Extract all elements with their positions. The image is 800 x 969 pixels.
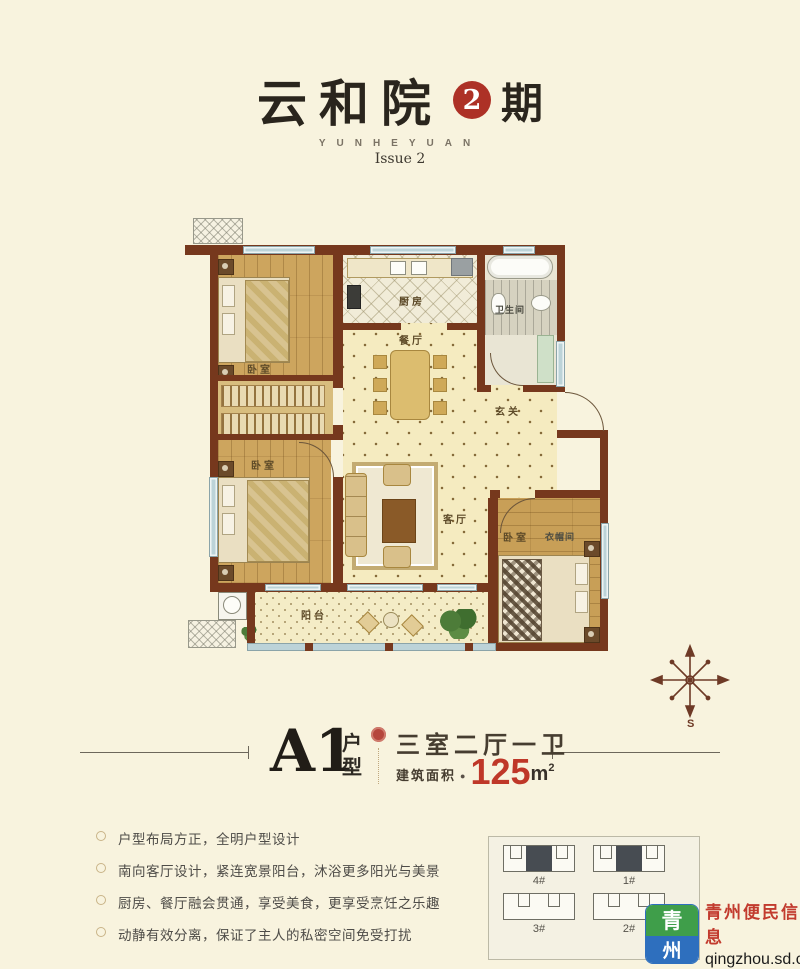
compass-icon: S <box>650 642 730 728</box>
logo-char-bottom: 州 <box>646 936 698 963</box>
window <box>347 584 423 591</box>
highlighted-unit <box>526 846 551 871</box>
wall-segment <box>490 490 500 498</box>
railing-post <box>305 643 313 651</box>
feature-item: 厨房、餐厅融会贯通，享受美食，更享受烹饪之乐趣 <box>96 892 496 912</box>
balcony-glass-railing <box>247 643 496 651</box>
building-outline-4 <box>503 845 575 872</box>
room-label-bedroom-north: 卧室 <box>247 361 273 376</box>
bullet-icon <box>96 927 106 937</box>
feature-item: 南向客厅设计，紧连宽景阳台，沐浴更多阳光与美景 <box>96 860 496 880</box>
wall-segment <box>333 425 343 440</box>
window <box>265 584 321 591</box>
wall-segment <box>333 477 343 583</box>
area-superscript: 2 <box>548 762 554 788</box>
window <box>503 246 535 254</box>
building-outline-1 <box>593 845 665 872</box>
room-label-kitchen: 厨房 <box>399 293 425 308</box>
pillow <box>575 563 588 585</box>
pillow <box>222 485 235 507</box>
subtitle-en: YUNHEYUAN <box>0 138 800 149</box>
feature-item: 户型布局方正，全明户型设计 <box>96 828 496 848</box>
room-label-living: 客厅 <box>443 511 469 526</box>
room-label-bath: 卫生间 <box>495 303 525 316</box>
building-label: 1# <box>593 875 665 887</box>
subtitle-issue: Issue 2 <box>0 151 800 167</box>
balcony-table <box>383 612 399 628</box>
room-label-bedroom-west: 卧室 <box>251 457 277 472</box>
area-separator-dot: ● <box>456 771 470 788</box>
watermark: 青 州 青州便民信息 qingzhou.sd.cn <box>645 898 800 969</box>
railing-post <box>465 643 473 651</box>
room-label-balcony: 阳台 <box>301 607 327 622</box>
quilt <box>502 559 542 641</box>
divider-line-right <box>552 752 720 753</box>
quilt <box>247 480 309 562</box>
dining-chair <box>373 401 387 415</box>
dining-chair <box>433 401 447 415</box>
building-outline-3 <box>503 893 575 920</box>
logo-char-top: 青 <box>646 905 698 936</box>
window <box>243 246 315 254</box>
closet-hanger-row <box>221 385 325 407</box>
ac-platform <box>188 620 236 648</box>
quilt <box>245 280 289 362</box>
wall-segment <box>488 498 498 643</box>
window <box>601 523 609 599</box>
nightstand <box>584 541 600 557</box>
building-notch <box>548 894 560 907</box>
dotted-divider <box>378 748 379 784</box>
nightstand <box>218 565 234 581</box>
dining-chair <box>433 355 447 369</box>
feature-text: 动静有效分离，保证了主人的私密空间免受打扰 <box>118 924 412 944</box>
watermark-text: 青州便民信息 qingzhou.sd.cn <box>705 898 800 969</box>
project-title: 云和院 <box>257 64 443 136</box>
issue-number-badge: 2 <box>453 81 491 119</box>
kitchen-sink <box>411 261 427 275</box>
railing-post <box>385 643 393 651</box>
highlighted-unit <box>616 846 641 871</box>
stove <box>347 285 361 309</box>
room-label-foyer: 玄关 <box>495 403 521 418</box>
area-row: 建筑面积 ● 125 m 2 <box>396 757 554 788</box>
building-notch <box>646 846 658 859</box>
nightstand <box>584 627 600 643</box>
bullet-icon <box>96 831 106 841</box>
floorplan: 卧室 卧室 厨房 餐厅 卫生间 玄关 客厅 卧室 衣帽间 阳台 <box>185 215 617 655</box>
nightstand <box>218 259 234 275</box>
page: { "header": { "title_main": "云和院", "issu… <box>0 0 800 965</box>
feature-text: 南向客厅设计，紧连宽景阳台，沐浴更多阳光与美景 <box>118 860 440 880</box>
wall-segment <box>333 255 343 388</box>
building-notch <box>608 894 620 907</box>
dining-table <box>390 350 430 420</box>
pillow <box>222 513 235 535</box>
watermark-url: qingzhou.sd.cn <box>705 951 800 969</box>
wall-segment <box>247 592 255 643</box>
wall-segment <box>447 323 477 330</box>
wall-segment <box>477 385 491 392</box>
wall-segment <box>535 490 608 498</box>
pillow <box>222 313 235 335</box>
bathtub <box>487 255 553 279</box>
feature-list: 户型布局方正，全明户型设计 南向客厅设计，紧连宽景阳台，沐浴更多阳光与美景 厨房… <box>96 828 496 956</box>
feature-text: 厨房、餐厅融会贯通，享受美食，更享受烹饪之乐趣 <box>118 892 440 912</box>
wall-segment <box>218 375 333 381</box>
wall-segment <box>488 643 608 651</box>
washing-machine <box>223 596 241 614</box>
qingzhou-logo: 青 州 <box>645 904 699 964</box>
room-label-dining: 餐厅 <box>399 332 425 347</box>
dining-chair <box>373 378 387 392</box>
wall-segment <box>218 434 333 440</box>
bullet-icon <box>96 895 106 905</box>
building-label: 3# <box>503 923 575 935</box>
window <box>556 341 565 387</box>
watermark-brand: 青州便民信息 <box>705 898 800 948</box>
building-notch <box>556 846 568 859</box>
bathroom-sink <box>531 295 551 311</box>
feature-text: 户型布局方正，全明户型设计 <box>118 828 300 848</box>
wall-segment <box>343 323 401 330</box>
seal-icon <box>371 727 386 742</box>
divider-line-left <box>80 752 248 753</box>
nightstand <box>218 461 234 477</box>
compass-south-label: S <box>687 718 694 728</box>
ac-platform <box>193 218 243 244</box>
window <box>370 246 456 254</box>
wall-segment <box>557 430 608 438</box>
plant <box>438 609 480 639</box>
window <box>209 477 218 557</box>
building-notch <box>510 846 522 859</box>
bullet-icon <box>96 863 106 873</box>
room-label-cloakroom: 衣帽间 <box>545 530 575 543</box>
fridge <box>451 258 473 276</box>
room-label-bedroom-south: 卧室 <box>503 529 529 544</box>
pillow <box>222 285 235 307</box>
area-value: 125 <box>470 757 530 788</box>
divider-tick-left <box>248 746 249 759</box>
area-unit: m <box>531 763 549 788</box>
area-label: 建筑面积 <box>396 765 456 788</box>
armchair <box>383 464 411 486</box>
issue-suffix: 期 <box>501 70 543 131</box>
unit-suffix: 户型 <box>342 732 366 781</box>
armchair <box>383 546 411 568</box>
building-notch <box>518 894 530 907</box>
coffee-table <box>382 499 416 543</box>
sofa <box>345 473 367 557</box>
wall-segment <box>477 245 485 385</box>
entrance-door-swing <box>565 392 604 431</box>
shower-area <box>537 335 554 383</box>
dining-chair <box>433 378 447 392</box>
kitchen-sink <box>390 261 406 275</box>
building-label: 4# <box>503 875 575 887</box>
window <box>437 584 477 591</box>
header: 云和院 2 期 <box>0 64 800 136</box>
feature-item: 动静有效分离，保证了主人的私密空间免受打扰 <box>96 924 496 944</box>
building-notch <box>600 846 612 859</box>
pillow <box>575 591 588 613</box>
dining-chair <box>373 355 387 369</box>
